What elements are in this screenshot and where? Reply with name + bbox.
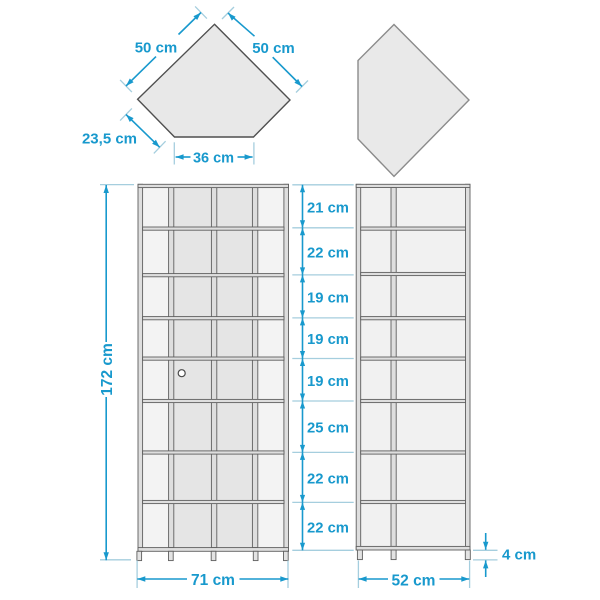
svg-text:52 cm: 52 cm [392,573,436,590]
svg-text:22 cm: 22 cm [307,471,349,487]
svg-text:25 cm: 25 cm [307,421,349,437]
svg-text:4 cm: 4 cm [502,547,536,564]
svg-text:22 cm: 22 cm [307,245,349,261]
svg-text:19 cm: 19 cm [307,374,349,390]
svg-text:50 cm: 50 cm [135,39,178,56]
svg-text:21 cm: 21 cm [307,200,349,216]
svg-text:22 cm: 22 cm [307,520,349,536]
svg-text:36 cm: 36 cm [193,151,234,167]
svg-text:172 cm: 172 cm [99,343,116,396]
svg-text:19 cm: 19 cm [307,290,349,306]
svg-text:23,5 cm: 23,5 cm [82,131,137,148]
svg-text:50 cm: 50 cm [252,40,295,57]
svg-text:19 cm: 19 cm [307,332,349,348]
svg-text:71 cm: 71 cm [191,572,235,589]
